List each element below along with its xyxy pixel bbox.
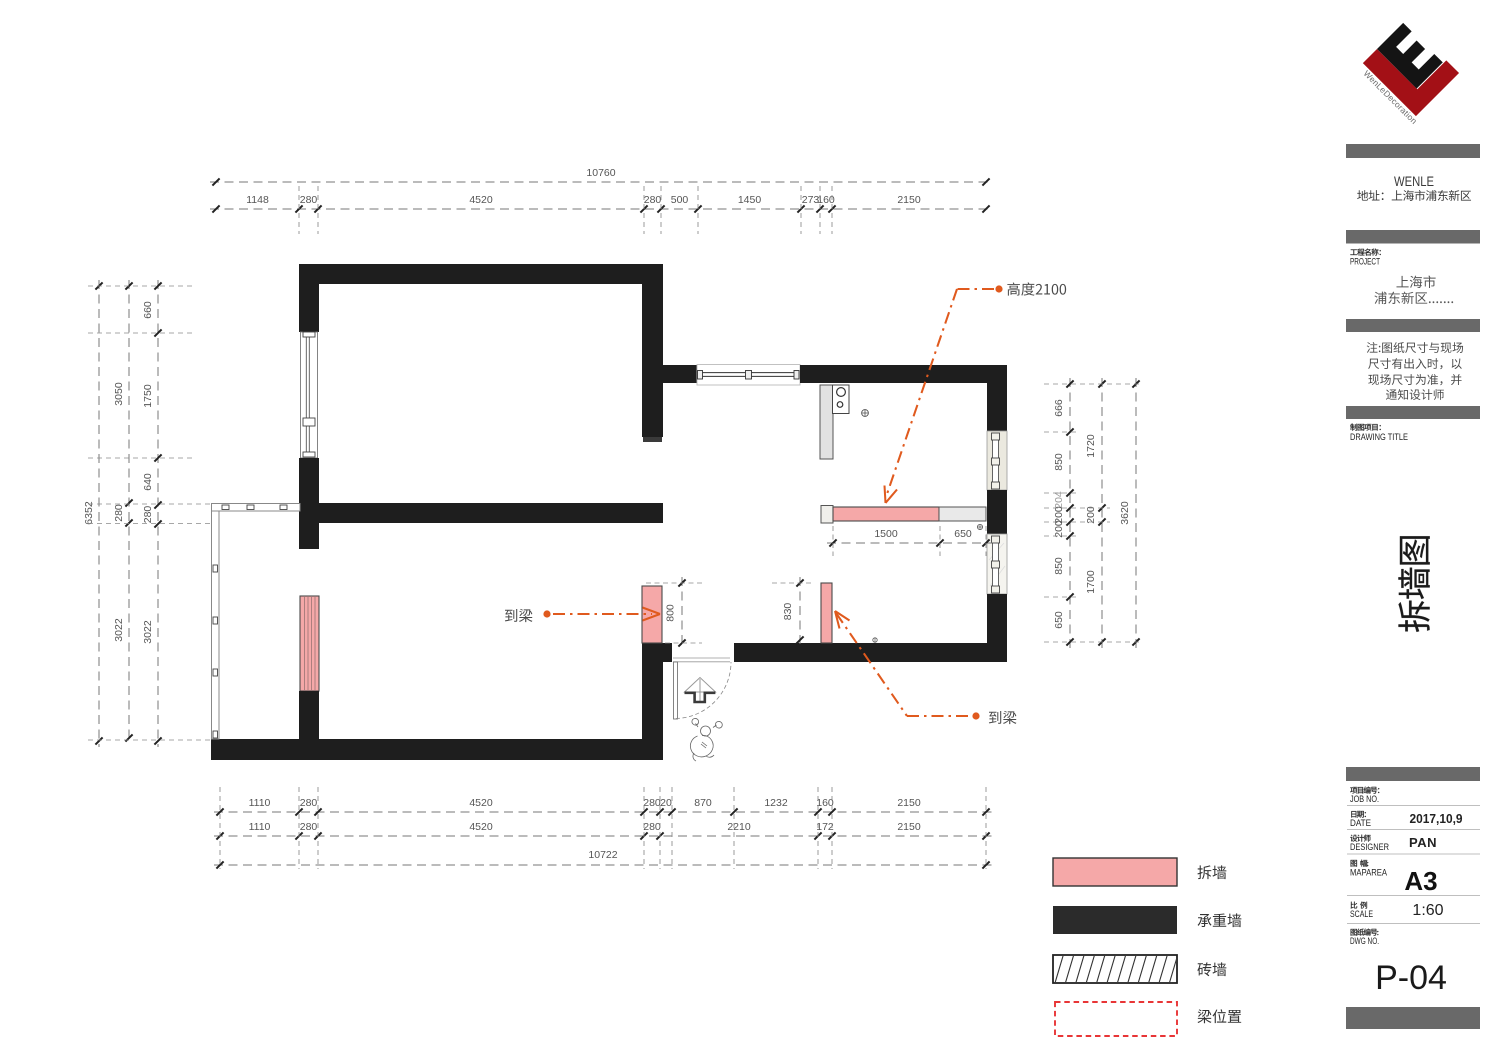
svg-text:2150: 2150 — [897, 194, 921, 206]
svg-text:160: 160 — [816, 797, 834, 809]
svg-text:2150: 2150 — [897, 821, 921, 833]
svg-text:4520: 4520 — [469, 797, 493, 809]
svg-text:3620: 3620 — [1119, 501, 1131, 525]
svg-text:2210: 2210 — [727, 821, 751, 833]
svg-text:640: 640 — [142, 473, 154, 491]
svg-text:DATE: DATE — [1350, 818, 1371, 829]
svg-text:WENLE: WENLE — [1394, 173, 1434, 189]
svg-text:4520: 4520 — [469, 821, 493, 833]
svg-text:172: 172 — [816, 821, 834, 833]
svg-text:850: 850 — [1053, 453, 1065, 471]
svg-text:280: 280 — [300, 797, 318, 809]
svg-text:1110: 1110 — [249, 821, 271, 833]
svg-text:1110: 1110 — [249, 797, 271, 809]
svg-text:280: 280 — [142, 506, 154, 524]
svg-text:660: 660 — [142, 301, 154, 319]
svg-text:1700: 1700 — [1085, 570, 1097, 594]
svg-text:2017,10,9: 2017,10,9 — [1410, 812, 1463, 826]
svg-text:3022: 3022 — [142, 620, 154, 644]
svg-text:2150: 2150 — [897, 797, 921, 809]
svg-text:650: 650 — [1053, 611, 1065, 629]
svg-text:1450: 1450 — [738, 194, 762, 206]
svg-text:200: 200 — [1053, 520, 1065, 538]
svg-text:DWG NO.: DWG NO. — [1350, 936, 1379, 947]
svg-text:P-04: P-04 — [1375, 959, 1447, 997]
svg-text:850: 850 — [1053, 557, 1065, 575]
svg-text:3050: 3050 — [113, 382, 125, 406]
svg-text:SCALE: SCALE — [1350, 909, 1373, 920]
svg-text:1232: 1232 — [764, 797, 788, 809]
svg-text:204: 204 — [1053, 491, 1065, 509]
svg-text:280: 280 — [300, 194, 318, 206]
svg-text:1750: 1750 — [142, 384, 154, 408]
svg-text:1:60: 1:60 — [1412, 902, 1443, 919]
svg-text:20: 20 — [660, 797, 672, 809]
svg-text:280: 280 — [300, 821, 318, 833]
svg-text:280: 280 — [643, 821, 661, 833]
svg-text:1500: 1500 — [874, 528, 898, 540]
svg-text:DRAWING TITLE: DRAWING TITLE — [1350, 432, 1408, 443]
svg-text:280: 280 — [644, 194, 662, 206]
svg-text:4520: 4520 — [469, 194, 493, 206]
svg-text:PROJECT: PROJECT — [1350, 257, 1380, 268]
svg-text:A3: A3 — [1404, 866, 1437, 896]
svg-text:1720: 1720 — [1085, 434, 1097, 458]
svg-text:666: 666 — [1053, 399, 1065, 417]
svg-text:200: 200 — [1085, 506, 1097, 524]
svg-text:800: 800 — [665, 604, 677, 622]
svg-text:650: 650 — [954, 528, 972, 540]
svg-text:JOB NO.: JOB NO. — [1350, 794, 1379, 805]
svg-text:280: 280 — [643, 797, 661, 809]
svg-text:500: 500 — [671, 194, 689, 206]
svg-text:PAN: PAN — [1409, 835, 1437, 850]
svg-text:1148: 1148 — [246, 194, 269, 206]
svg-text:870: 870 — [694, 797, 712, 809]
svg-text:10722: 10722 — [588, 849, 617, 861]
svg-text:10760: 10760 — [586, 167, 615, 179]
svg-text:830: 830 — [782, 603, 794, 621]
svg-text:3022: 3022 — [113, 618, 125, 642]
svg-text:280: 280 — [113, 504, 125, 522]
svg-text:MAPAREA: MAPAREA — [1350, 868, 1388, 879]
svg-text:6352: 6352 — [83, 501, 95, 525]
svg-text:DESIGNER: DESIGNER — [1350, 842, 1389, 853]
